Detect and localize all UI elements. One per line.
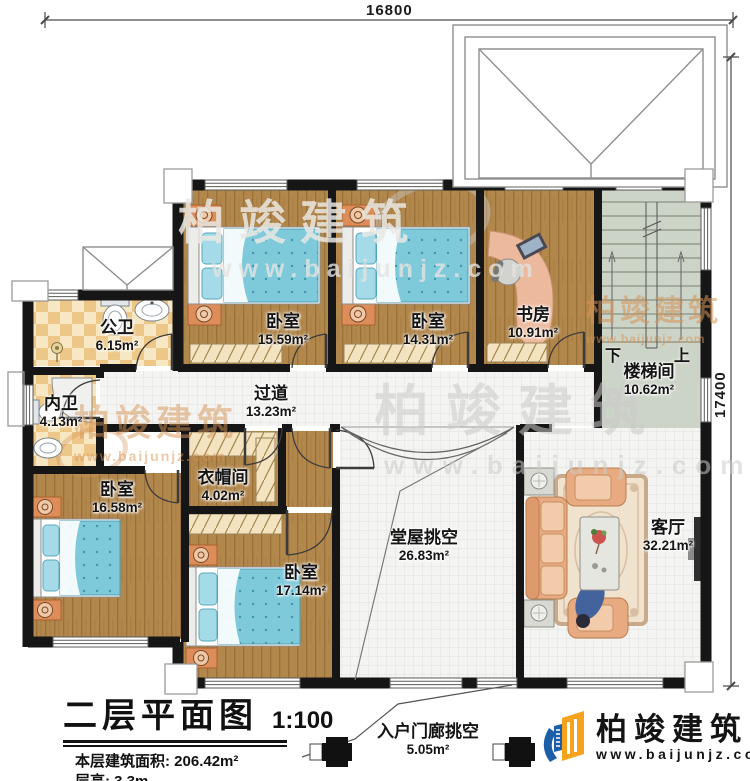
title-underline — [63, 740, 287, 743]
sink-icon — [135, 299, 169, 321]
canopy-outline — [83, 247, 173, 290]
dimension-right: 17400 — [712, 371, 729, 418]
floor-height-value: 3.3m — [114, 773, 148, 781]
stairs-up-label: 上 — [674, 342, 690, 366]
floor-height-label: 层高: — [75, 773, 110, 781]
company-website: www.baijunjz.com — [596, 746, 750, 762]
room-label-bedroom4: 卧室17.14m² — [276, 563, 326, 598]
floor-area-value: 206.42m² — [174, 753, 238, 770]
room-label-bedroom1: 卧室15.59m² — [258, 312, 308, 347]
room-label-corridor: 过道13.23m² — [246, 384, 296, 419]
coffee-table-icon — [580, 517, 619, 590]
title-block: 二层平面图 1:100 本层建筑面积: 206.42m² 层高: 3.3m — [63, 688, 333, 781]
company-logo: 柏竣建筑 www.baijunjz.com — [536, 706, 750, 770]
room-label-porch-void: 入户门廊挑空5.05m² — [377, 722, 479, 757]
scale-label: 1:100 — [272, 707, 333, 737]
page-title: 二层平面图 — [63, 688, 258, 737]
dimension-top: 16800 — [366, 2, 413, 19]
room-label-public-bath: 公卫6.15m² — [96, 318, 139, 353]
floorplan-page: 柏竣建筑 www.baijunjz.com 柏竣建筑 www.baijunjz.… — [0, 0, 750, 781]
floor-area-label: 本层建筑面积: — [75, 753, 170, 770]
room-label-private-bath: 内卫4.13m² — [40, 394, 83, 429]
stairs-down-label: 下 — [605, 342, 621, 366]
roof-outline — [453, 25, 727, 187]
company-logo-icon — [536, 706, 588, 770]
room-label-bedroom3: 卧室16.58m² — [92, 480, 142, 515]
sink-icon — [34, 438, 62, 458]
room-label-living: 客厅32.21m² — [643, 518, 693, 553]
room-label-bedroom2: 卧室14.31m² — [403, 312, 453, 347]
company-name: 柏竣建筑 — [596, 714, 750, 747]
room-label-hall-void: 堂屋挑空26.83m² — [390, 528, 458, 563]
room-label-study: 书房10.91m² — [508, 305, 558, 340]
title-underline — [63, 745, 287, 747]
room-label-cloakroom: 衣帽间4.02m² — [198, 468, 249, 503]
wardrobe-icon — [487, 343, 547, 362]
room-label-stairwell: 楼梯间10.62m² — [624, 362, 675, 397]
